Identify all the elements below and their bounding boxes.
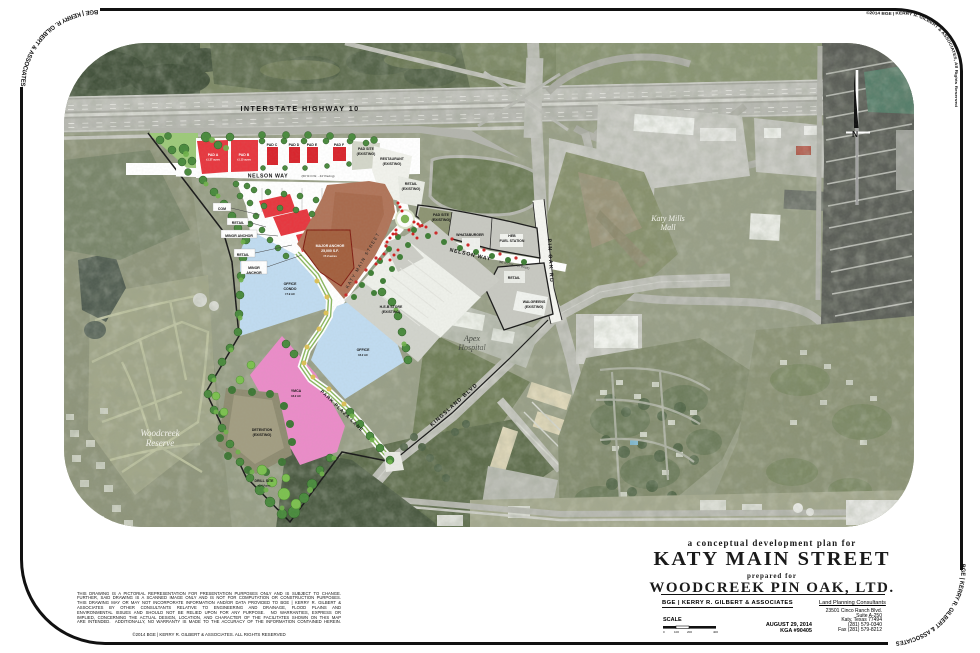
svg-text:400: 400 [713, 630, 718, 634]
svg-text:Katy Mills: Katy Mills [650, 214, 685, 223]
svg-text:PAD F: PAD F [334, 143, 345, 147]
svg-text:(EXISTING): (EXISTING) [383, 162, 402, 166]
svg-text:(EXISTING): (EXISTING) [382, 310, 401, 314]
svg-text:200: 200 [687, 630, 692, 634]
svg-text:RESTAURANT: RESTAURANT [380, 157, 405, 161]
svg-text:Mall: Mall [659, 223, 676, 232]
svg-text:(60' R.O.W. - 44' Paving): (60' R.O.W. - 44' Paving) [302, 174, 335, 178]
svg-text:INTERSTATE HIGHWAY 10: INTERSTATE HIGHWAY 10 [241, 104, 360, 113]
svg-text:COM: COM [218, 207, 226, 211]
svg-text:±1.37 acres: ±1.37 acres [206, 158, 221, 162]
svg-text:25,000 S.F.: 25,000 S.F. [321, 249, 339, 253]
svg-text:(EXISTING): (EXISTING) [357, 152, 376, 156]
svg-text:0: 0 [663, 630, 665, 634]
svg-text:(EXISTING): (EXISTING) [253, 433, 272, 437]
svg-text:PAD SITE: PAD SITE [358, 147, 375, 151]
svg-text:OFFICE: OFFICE [357, 348, 370, 352]
svg-text:±3.4 Acres: ±3.4 Acres [258, 484, 271, 488]
svg-text:Hospital: Hospital [457, 343, 486, 352]
svg-text:PAD SITE: PAD SITE [433, 213, 450, 217]
svg-text:100: 100 [674, 630, 679, 634]
svg-text:±1.15 acres: ±1.15 acres [237, 158, 252, 162]
svg-text:PAD A: PAD A [208, 153, 219, 157]
svg-text:(EXISTING): (EXISTING) [402, 187, 421, 191]
svg-text:WALGREENS: WALGREENS [523, 300, 546, 304]
svg-text:RETAIL: RETAIL [405, 182, 418, 186]
svg-text:FUEL STATION: FUEL STATION [500, 239, 525, 243]
svg-text:MAJOR ANCHOR: MAJOR ANCHOR [316, 244, 345, 248]
svg-text:YMCA: YMCA [291, 389, 302, 393]
svg-text:Woodcreek: Woodcreek [140, 428, 180, 438]
svg-text:H-E-B STORE: H-E-B STORE [380, 305, 403, 309]
svg-text:RETAIL: RETAIL [232, 221, 245, 225]
svg-text:MINOR: MINOR [248, 266, 260, 270]
svg-text:CONDO: CONDO [283, 287, 296, 291]
svg-text:±8.2 AC: ±8.2 AC [291, 394, 301, 398]
svg-text:PAD D: PAD D [289, 143, 300, 147]
svg-text:(EXISTING): (EXISTING) [525, 305, 544, 309]
svg-text:(EXISTING): (EXISTING) [432, 218, 451, 222]
svg-text:Reserve: Reserve [145, 438, 174, 448]
svg-text:WHATABURGER: WHATABURGER [456, 233, 484, 237]
svg-text:PAD B: PAD B [239, 153, 250, 157]
svg-text:NELSON WAY: NELSON WAY [248, 174, 288, 180]
svg-text:±7.2 acres: ±7.2 acres [323, 254, 337, 258]
svg-text:PAD E: PAD E [307, 143, 318, 147]
svg-text:Apex: Apex [463, 334, 480, 343]
svg-text:DETENTION: DETENTION [252, 428, 273, 432]
svg-text:OFFICE: OFFICE [284, 282, 297, 286]
svg-text:ANCHOR: ANCHOR [246, 271, 262, 275]
svg-text:±8.2 AC: ±8.2 AC [358, 353, 368, 357]
svg-text:RETAIL: RETAIL [237, 253, 250, 257]
svg-text:MINOR ANCHOR: MINOR ANCHOR [225, 234, 253, 238]
svg-text:PAD C: PAD C [267, 143, 278, 147]
svg-text:DRILL SITE: DRILL SITE [255, 479, 275, 483]
svg-text:N: N [852, 129, 858, 139]
svg-text:RETAIL: RETAIL [508, 276, 521, 280]
svg-text:HEB: HEB [508, 234, 516, 238]
svg-text:±7.9 AC: ±7.9 AC [285, 292, 295, 296]
